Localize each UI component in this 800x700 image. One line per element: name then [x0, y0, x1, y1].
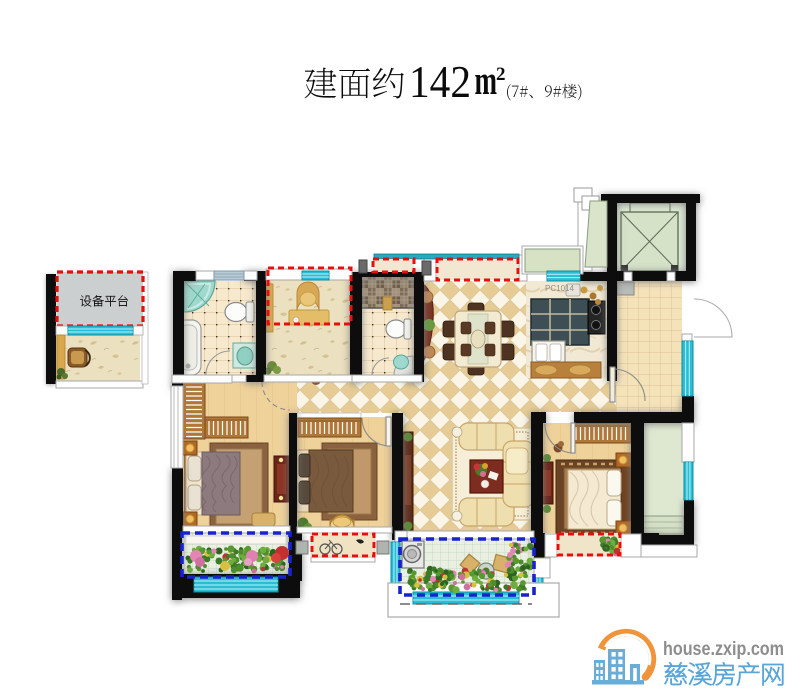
svg-text:PC1014: PC1014	[545, 284, 574, 293]
svg-text:2: 2	[496, 64, 506, 85]
svg-text:house.zxip.com: house.zxip.com	[663, 638, 784, 660]
svg-text:m: m	[475, 57, 498, 103]
svg-text:142: 142	[409, 56, 471, 107]
